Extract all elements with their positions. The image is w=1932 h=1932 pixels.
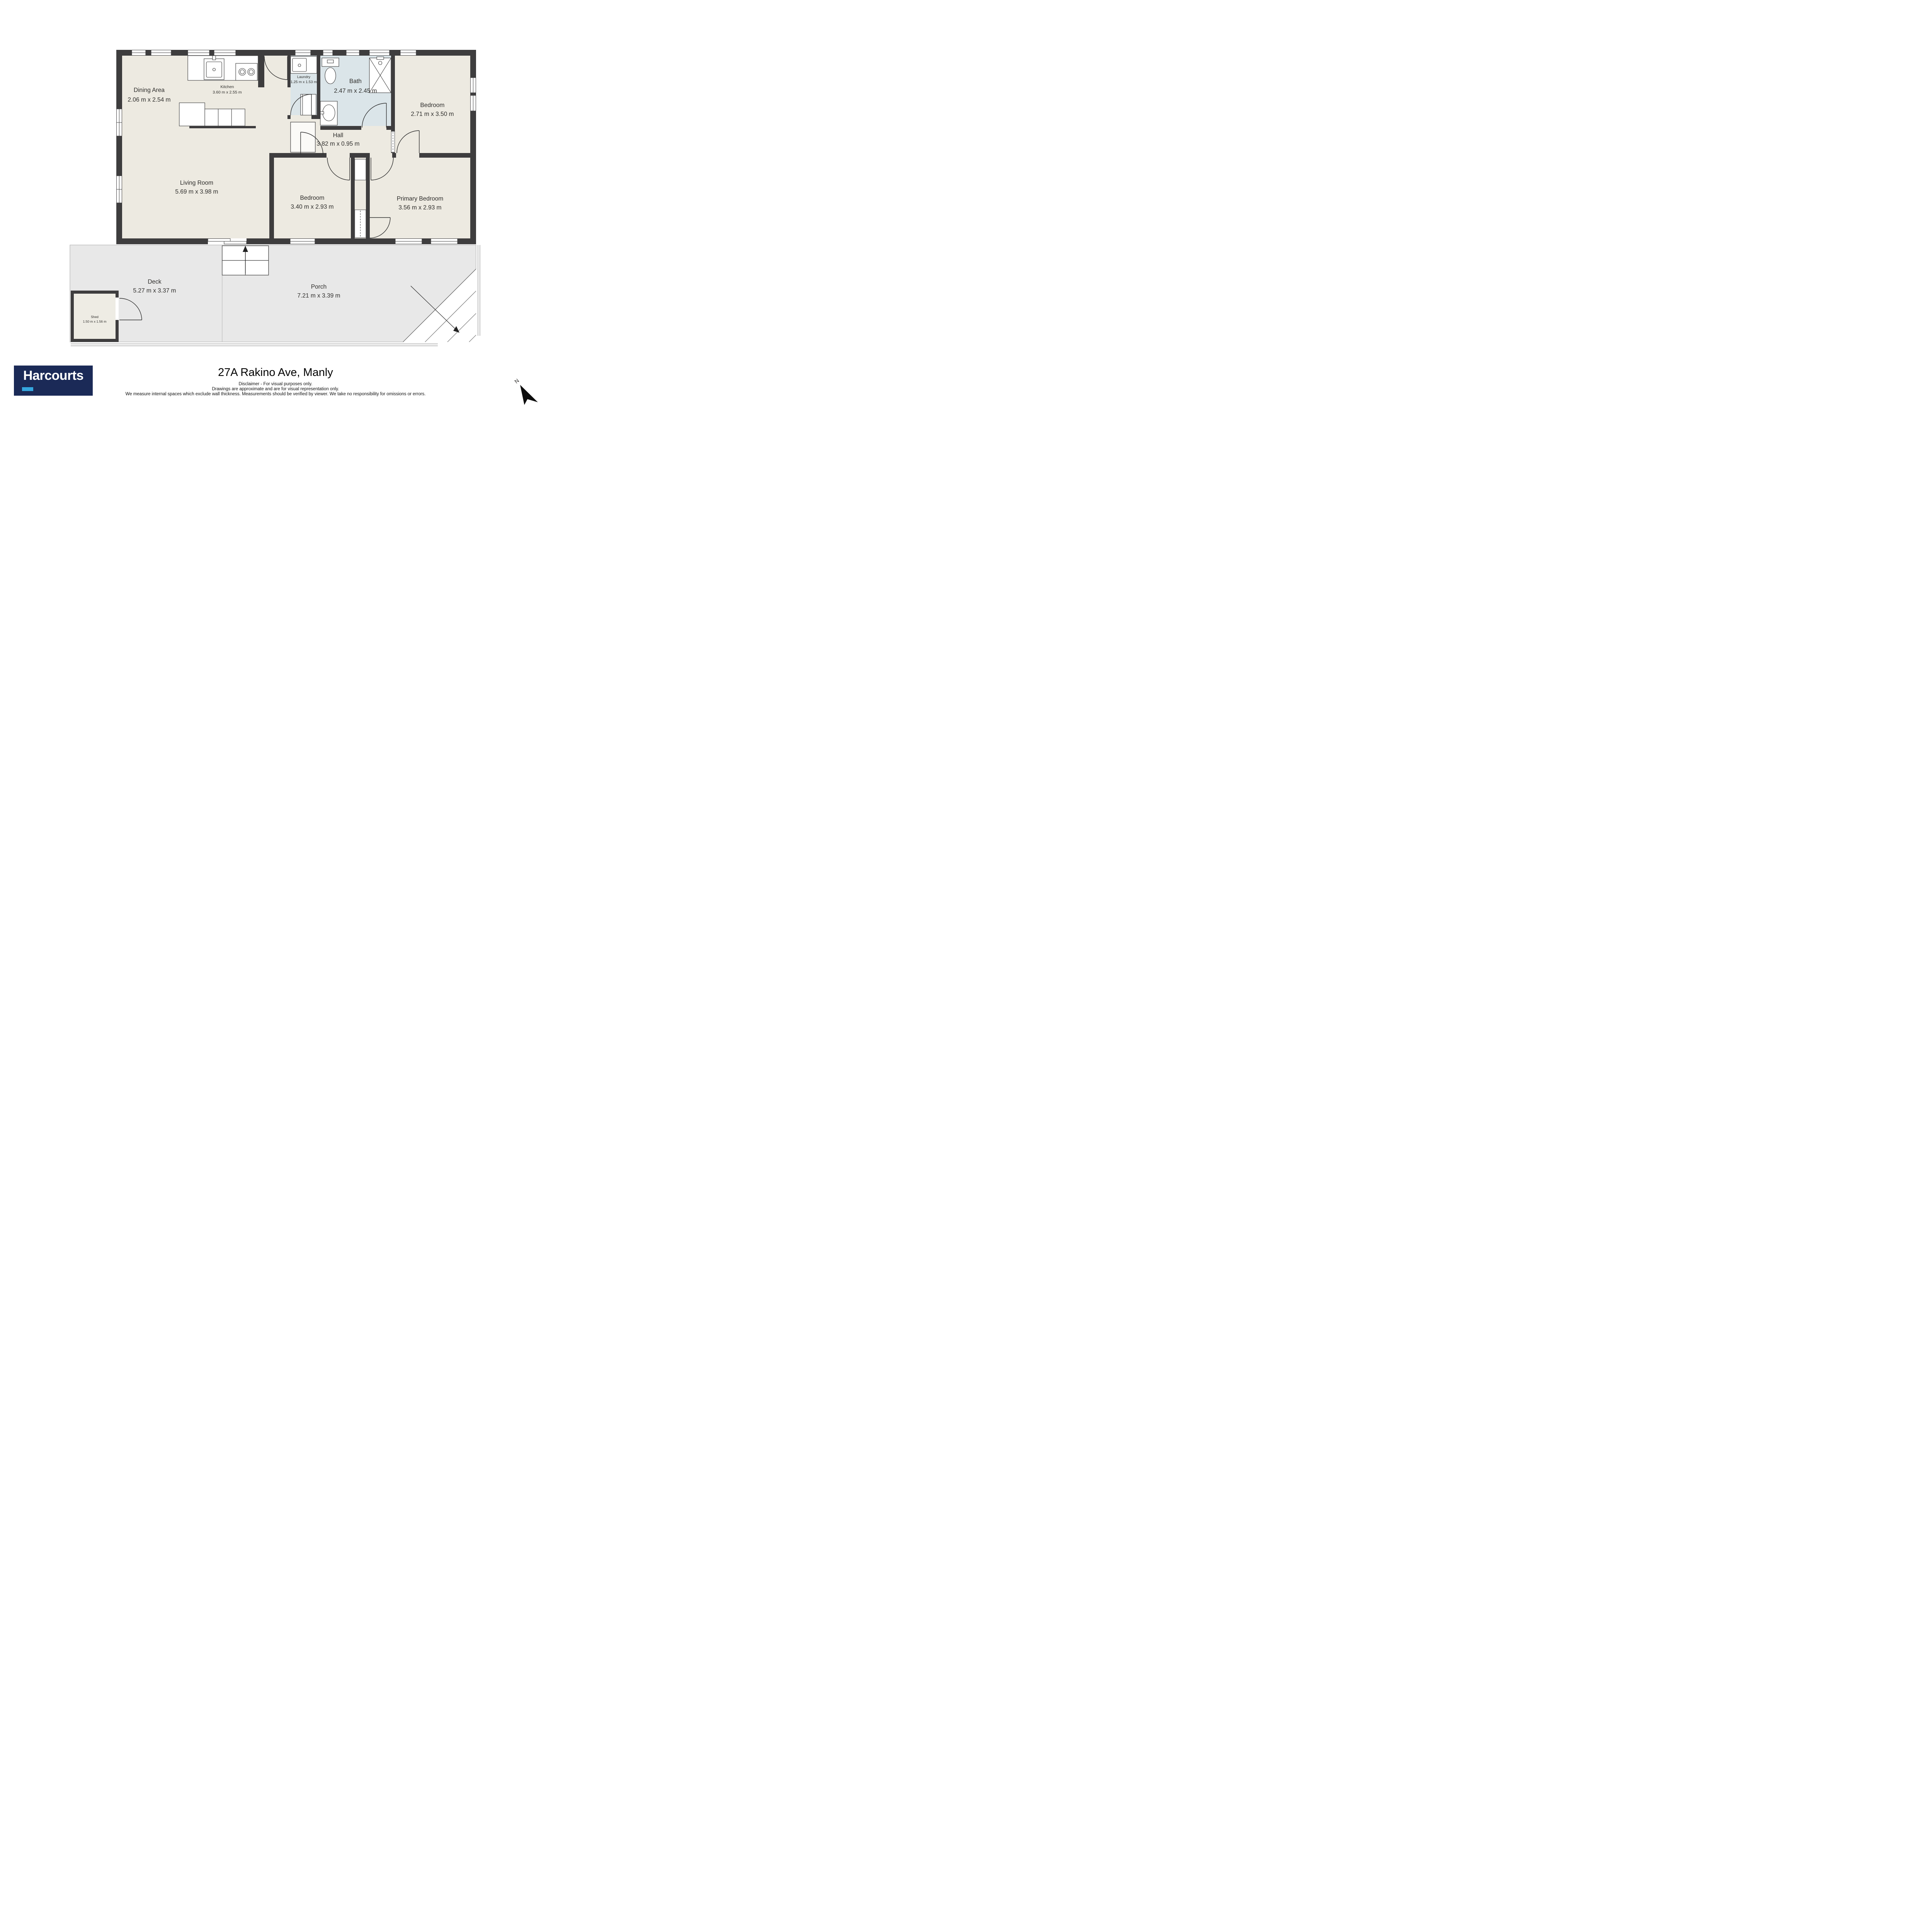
sliding-door-icon <box>208 238 247 244</box>
washing-machine-icon <box>301 94 316 115</box>
room-dims-living: 5.69 m x 3.98 m <box>175 189 218 195</box>
window-icon <box>117 176 122 203</box>
window-icon <box>214 50 236 56</box>
room-label-shed: Shed <box>91 315 99 319</box>
laundry-tub-icon <box>291 56 317 73</box>
room-label-bath: Bath <box>349 78 362 85</box>
floorplan-page: Dining Area 2.06 m x 2.54 m Kitchen 3.60… <box>0 0 541 406</box>
vanity-sink-icon <box>320 101 337 125</box>
window-icon <box>369 50 389 56</box>
disclaimer: Disclaimer - For visual purposes only. D… <box>10 382 541 397</box>
hall-cupboard <box>291 122 315 152</box>
room-dims-bedroom-middle: 3.40 m x 2.93 m <box>291 204 333 210</box>
room-label-kitchen: Kitchen <box>220 85 234 89</box>
deck-steps-icon <box>222 246 269 275</box>
window-icon <box>395 239 422 244</box>
window-icon <box>346 50 359 56</box>
cooktop-icon <box>236 63 257 80</box>
disclaimer-line: We measure internal spaces which exclude… <box>10 392 541 397</box>
disclaimer-line: Disclaimer - For visual purposes only. <box>10 382 541 387</box>
window-icon <box>323 50 333 56</box>
window-icon <box>132 50 146 56</box>
room-label-bedroom-middle: Bedroom <box>300 195 325 201</box>
room-label-porch: Porch <box>311 284 327 290</box>
kitchen-sink-icon <box>204 56 224 80</box>
room-label-primary: Primary Bedroom <box>397 196 444 202</box>
page-title: 27A Rakino Ave, Manly <box>10 366 541 379</box>
room-label-living: Living Room <box>180 180 213 186</box>
linen-closet <box>391 131 395 152</box>
room-dims-porch: 7.21 m x 3.39 m <box>297 293 340 299</box>
room-dims-kitchen: 3.60 m x 2.55 m <box>213 90 242 95</box>
room-dims-shed: 1.50 m x 1.56 m <box>83 320 107 323</box>
room-dims-bath: 2.47 m x 2.45 m <box>334 88 377 94</box>
room-dims-primary: 3.56 m x 2.93 m <box>398 204 441 211</box>
room-label-laundry: Laundry <box>297 75 311 79</box>
window-icon <box>151 50 171 56</box>
room-dims-laundry: 1.25 m x 1.53 m <box>291 80 317 84</box>
room-dims-hall: 3.82 m x 0.95 m <box>316 141 359 147</box>
room-dims-bedroom-top: 2.71 m x 3.50 m <box>411 111 454 117</box>
wardrobe <box>355 210 366 238</box>
window-icon <box>471 78 476 93</box>
room-label-bedroom-top: Bedroom <box>420 102 445 109</box>
shed-door-opening <box>116 298 119 320</box>
window-icon <box>400 50 416 56</box>
room-label-hall: Hall <box>333 132 344 139</box>
room-label-deck: Deck <box>148 279 162 285</box>
room-dims-dining: 2.06 m x 2.54 m <box>128 97 170 103</box>
window-icon <box>290 239 315 244</box>
room-dims-deck: 5.27 m x 3.37 m <box>133 287 176 294</box>
outdoor-areas <box>70 245 480 346</box>
window-icon <box>117 109 122 136</box>
room-label-dining: Dining Area <box>134 87 165 94</box>
window-icon <box>295 50 311 56</box>
floorplan-drawing: Dining Area 2.06 m x 2.54 m Kitchen 3.60… <box>0 0 541 406</box>
window-icon <box>188 50 209 56</box>
window-icon <box>471 95 476 111</box>
hall-closet <box>355 159 366 180</box>
window-icon <box>431 239 457 244</box>
disclaimer-line: Drawings are approximate and are for vis… <box>10 387 541 392</box>
